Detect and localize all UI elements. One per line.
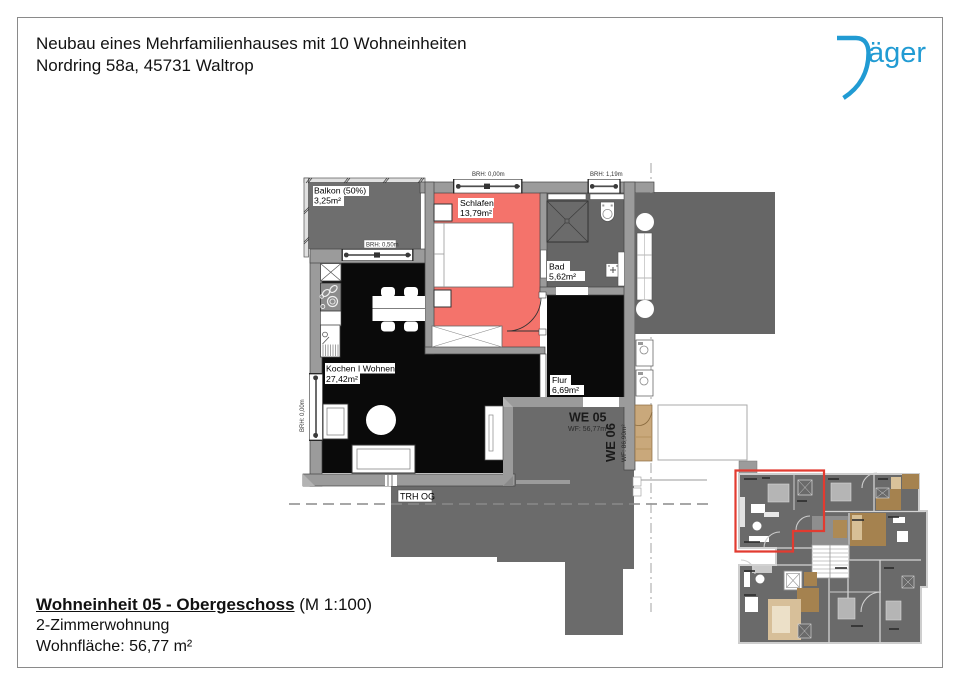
svg-text:TRH OG: TRH OG [400,492,435,502]
svg-text:Kochen I Wohnen: Kochen I Wohnen [326,363,395,373]
svg-text:BRH: 1,19m: BRH: 1,19m [590,172,623,178]
svg-text:3,25m²: 3,25m² [314,196,341,206]
svg-text:WF: 86,90m²: WF: 86,90m² [621,424,628,462]
svg-text:6,69m²: 6,69m² [552,385,579,395]
svg-text:Balkon (50%): Balkon (50%) [314,186,366,196]
svg-text:WE 05: WE 05 [569,411,607,425]
svg-text:WE 06: WE 06 [603,423,618,462]
svg-text:Bad: Bad [549,261,565,271]
svg-text:27,42m²: 27,42m² [326,374,358,384]
svg-text:BRH: 0,00m: BRH: 0,00m [300,399,306,432]
svg-text:5,62m²: 5,62m² [549,271,576,281]
svg-text:BRH: 0,00m: BRH: 0,00m [472,172,505,178]
svg-text:BRH: 0,50m: BRH: 0,50m [366,243,399,249]
svg-text:Schlafen: Schlafen [460,198,494,208]
svg-text:Flur: Flur [552,375,567,385]
svg-text:13,79m²: 13,79m² [460,208,492,218]
